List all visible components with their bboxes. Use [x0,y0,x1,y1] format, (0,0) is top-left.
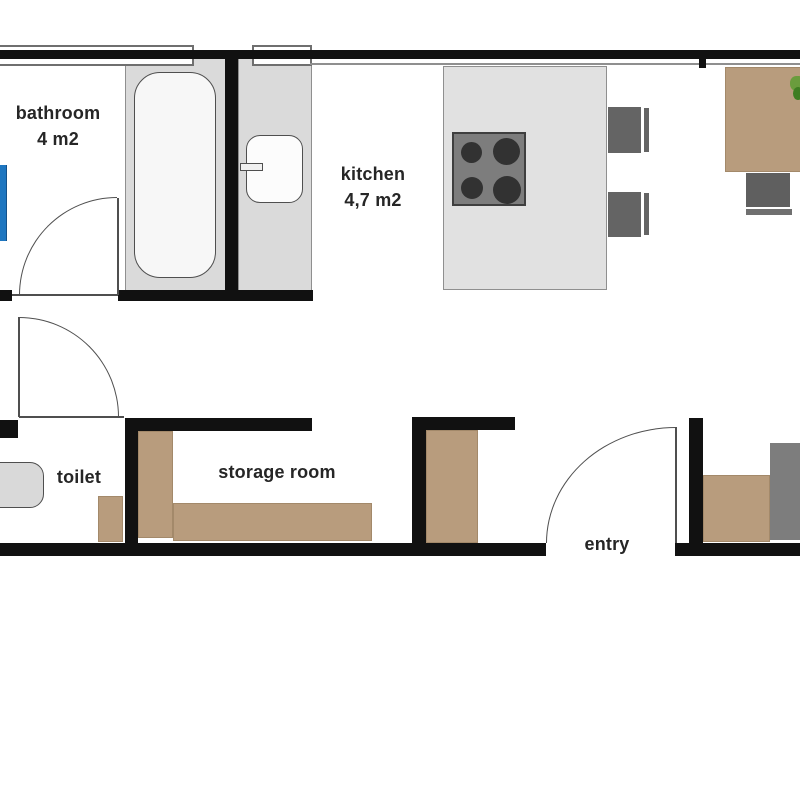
stove-burner-icon [461,177,483,199]
bar-stool-back [644,193,649,235]
bathroom-door-leaf [117,198,119,295]
room-label-kitchen: kitchen 4,7 m2 [318,161,428,213]
bathroom-divider-wall [225,57,238,291]
entry-wardrobe [770,443,800,540]
top-exterior-wall [0,50,800,59]
stove-burner-icon [493,138,520,165]
bottom-exterior-wall-left [0,543,546,556]
room-label-toilet: toilet [44,464,114,490]
kitchen-name: kitchen [318,161,428,187]
stove-burner-icon [493,176,521,204]
hall-door-threshold [19,416,124,418]
storage-cabinet-left [138,431,173,538]
bathroom-door-arc [19,197,117,295]
entry-side-wall [689,418,703,543]
kitchen-area: 4,7 m2 [318,187,428,213]
toilet-wall-stub [0,420,18,438]
desk-chair-back [746,209,792,215]
storage-top-wall-left [125,418,312,431]
desk-chair-seat [746,173,790,207]
plant-icon [789,76,800,104]
bathtub [134,72,216,278]
wall-stub-table [699,50,706,68]
storage-left-wall [125,418,138,545]
bottom-exterior-wall-right [675,543,800,556]
room-label-entry: entry [572,531,642,557]
floor-plan: bathroom 4 m2 kitchen 4,7 m2 toilet stor… [0,0,800,800]
radiator [0,165,7,241]
storage-top-wall-right [412,417,515,430]
bar-stool-back [644,108,649,152]
hall-door-leaf [18,317,20,417]
stove [452,132,526,206]
entry-bench [703,475,770,542]
bathroom-name: bathroom [3,100,113,126]
room-label-storage: storage room [202,459,352,485]
storage-cabinet-right [426,430,478,543]
entry-door-leaf [675,427,677,543]
bathroom-bottom-wall-main [118,290,313,301]
toilet-basin [0,462,44,508]
storage-shelf [173,503,372,541]
bathroom-bottom-wall-left [0,290,12,301]
toilet-cabinet [98,496,123,542]
top-wall-inner-face [310,63,800,65]
bar-stool-seat [608,107,641,153]
bathroom-door-threshold [12,294,118,296]
hall-door-arc [19,317,119,417]
room-label-bathroom: bathroom 4 m2 [3,100,113,152]
sink-faucet [240,163,263,171]
storage-right-wall [412,417,426,545]
bar-stool-seat [608,192,641,237]
stove-burner-icon [461,142,482,163]
bathroom-area: 4 m2 [3,126,113,152]
entry-door-arc [546,427,676,543]
